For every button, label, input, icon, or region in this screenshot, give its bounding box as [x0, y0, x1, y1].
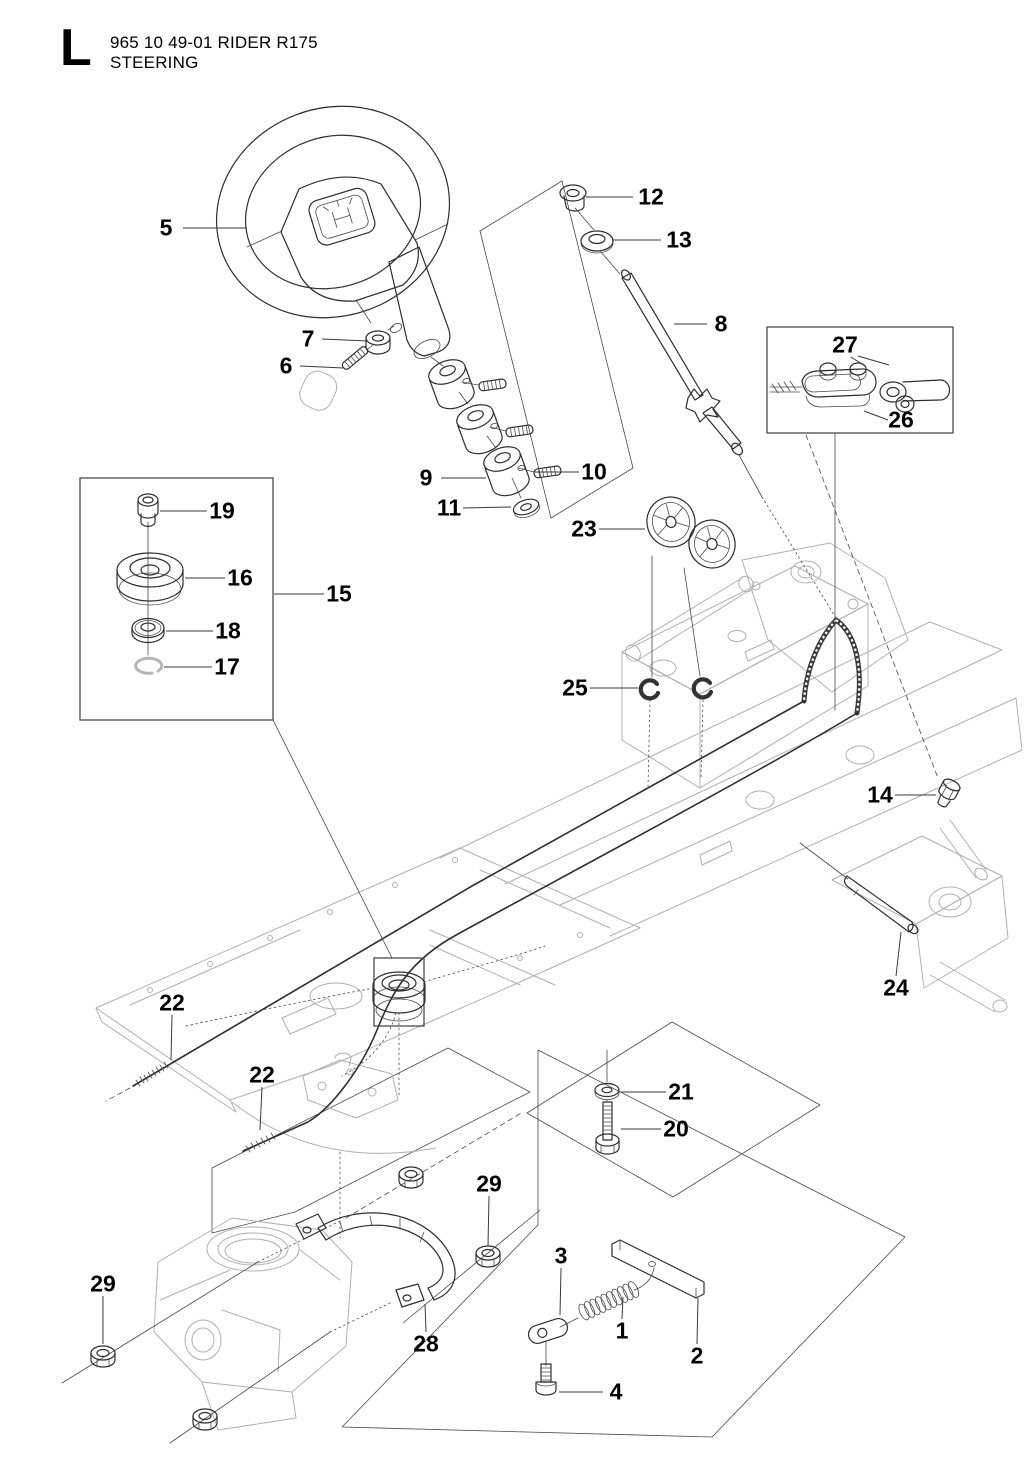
- callout-13: 13: [666, 229, 692, 252]
- retainer-clips-25: [641, 679, 711, 698]
- drawing-subtitle: STEERING: [110, 53, 318, 73]
- inset-box-detail-26-27: [767, 327, 953, 778]
- snap-ring-17: [136, 658, 162, 673]
- pulley-mount-box: [186, 946, 545, 1098]
- washer-11: [511, 496, 541, 520]
- steering-cables: [106, 701, 857, 1152]
- callout-2: 2: [691, 1345, 704, 1368]
- callout-3: 3: [555, 1245, 568, 1268]
- rod-24: [800, 843, 920, 936]
- plate-2: [612, 1240, 704, 1298]
- callout-7: 7: [302, 328, 315, 351]
- callout-16: 16: [227, 567, 253, 590]
- callout-26: 26: [888, 409, 914, 432]
- bushing-12: [560, 185, 594, 230]
- callout-8: 8: [715, 313, 728, 336]
- callout-22-b: 22: [249, 1064, 275, 1087]
- callout-23: 23: [571, 518, 597, 541]
- callout-21: 21: [668, 1081, 694, 1104]
- section-letter: L: [60, 22, 92, 74]
- screw-4: [536, 1364, 556, 1395]
- bolt-20: [596, 1096, 619, 1154]
- callout-27: 27: [832, 334, 858, 357]
- drawing-title-line1: 965 10 49-01 RIDER R175: [110, 33, 318, 53]
- screw-6: [341, 344, 374, 371]
- callout-20: 20: [663, 1118, 689, 1141]
- callout-22-a: 22: [159, 992, 185, 1015]
- callout-6: 6: [280, 355, 293, 378]
- pulley-16: [117, 553, 183, 605]
- callout-19: 19: [209, 500, 235, 523]
- clamp-28: [296, 1213, 455, 1307]
- pulley-mount-lines: [648, 556, 703, 787]
- callout-11: 11: [437, 497, 461, 520]
- callout-12: 12: [638, 186, 664, 209]
- parts-diagram-page: L 965 10 49-01 RIDER R175 STEERING 5 12 …: [0, 0, 1024, 1480]
- callout-5: 5: [160, 217, 173, 240]
- callout-25: 25: [562, 677, 588, 700]
- callout-10: 10: [581, 461, 607, 484]
- callout-28: 28: [413, 1333, 439, 1356]
- assembly-axis-lines: [62, 1112, 540, 1443]
- drawing-title: 965 10 49-01 RIDER R175 STEERING: [110, 33, 318, 73]
- husqvarna-badge-icon: [307, 186, 378, 248]
- bearing-13: [581, 231, 620, 274]
- inset-box-15: [80, 478, 392, 958]
- nut-7: [366, 322, 403, 354]
- callout-4: 4: [610, 1381, 623, 1404]
- eyelet-3: [526, 1316, 570, 1366]
- steering-gear-housing: [154, 1218, 352, 1430]
- callout-14: 14: [867, 784, 893, 807]
- bolt-14: [933, 777, 962, 810]
- callout-1: 1: [616, 1320, 629, 1343]
- callout-18: 18: [215, 620, 241, 643]
- callout-29-a: 29: [476, 1173, 502, 1196]
- diagram-art: [0, 0, 1024, 1480]
- steering-wheel: [187, 74, 480, 363]
- callout-15: 15: [326, 583, 352, 606]
- callout-17: 17: [214, 656, 240, 679]
- column-cap: [295, 367, 341, 414]
- callout-29-b: 29: [90, 1273, 116, 1296]
- pulleys-23: [641, 492, 740, 573]
- callout-24: 24: [883, 977, 909, 1000]
- spring-1: [560, 1268, 654, 1327]
- callout-9: 9: [420, 467, 433, 490]
